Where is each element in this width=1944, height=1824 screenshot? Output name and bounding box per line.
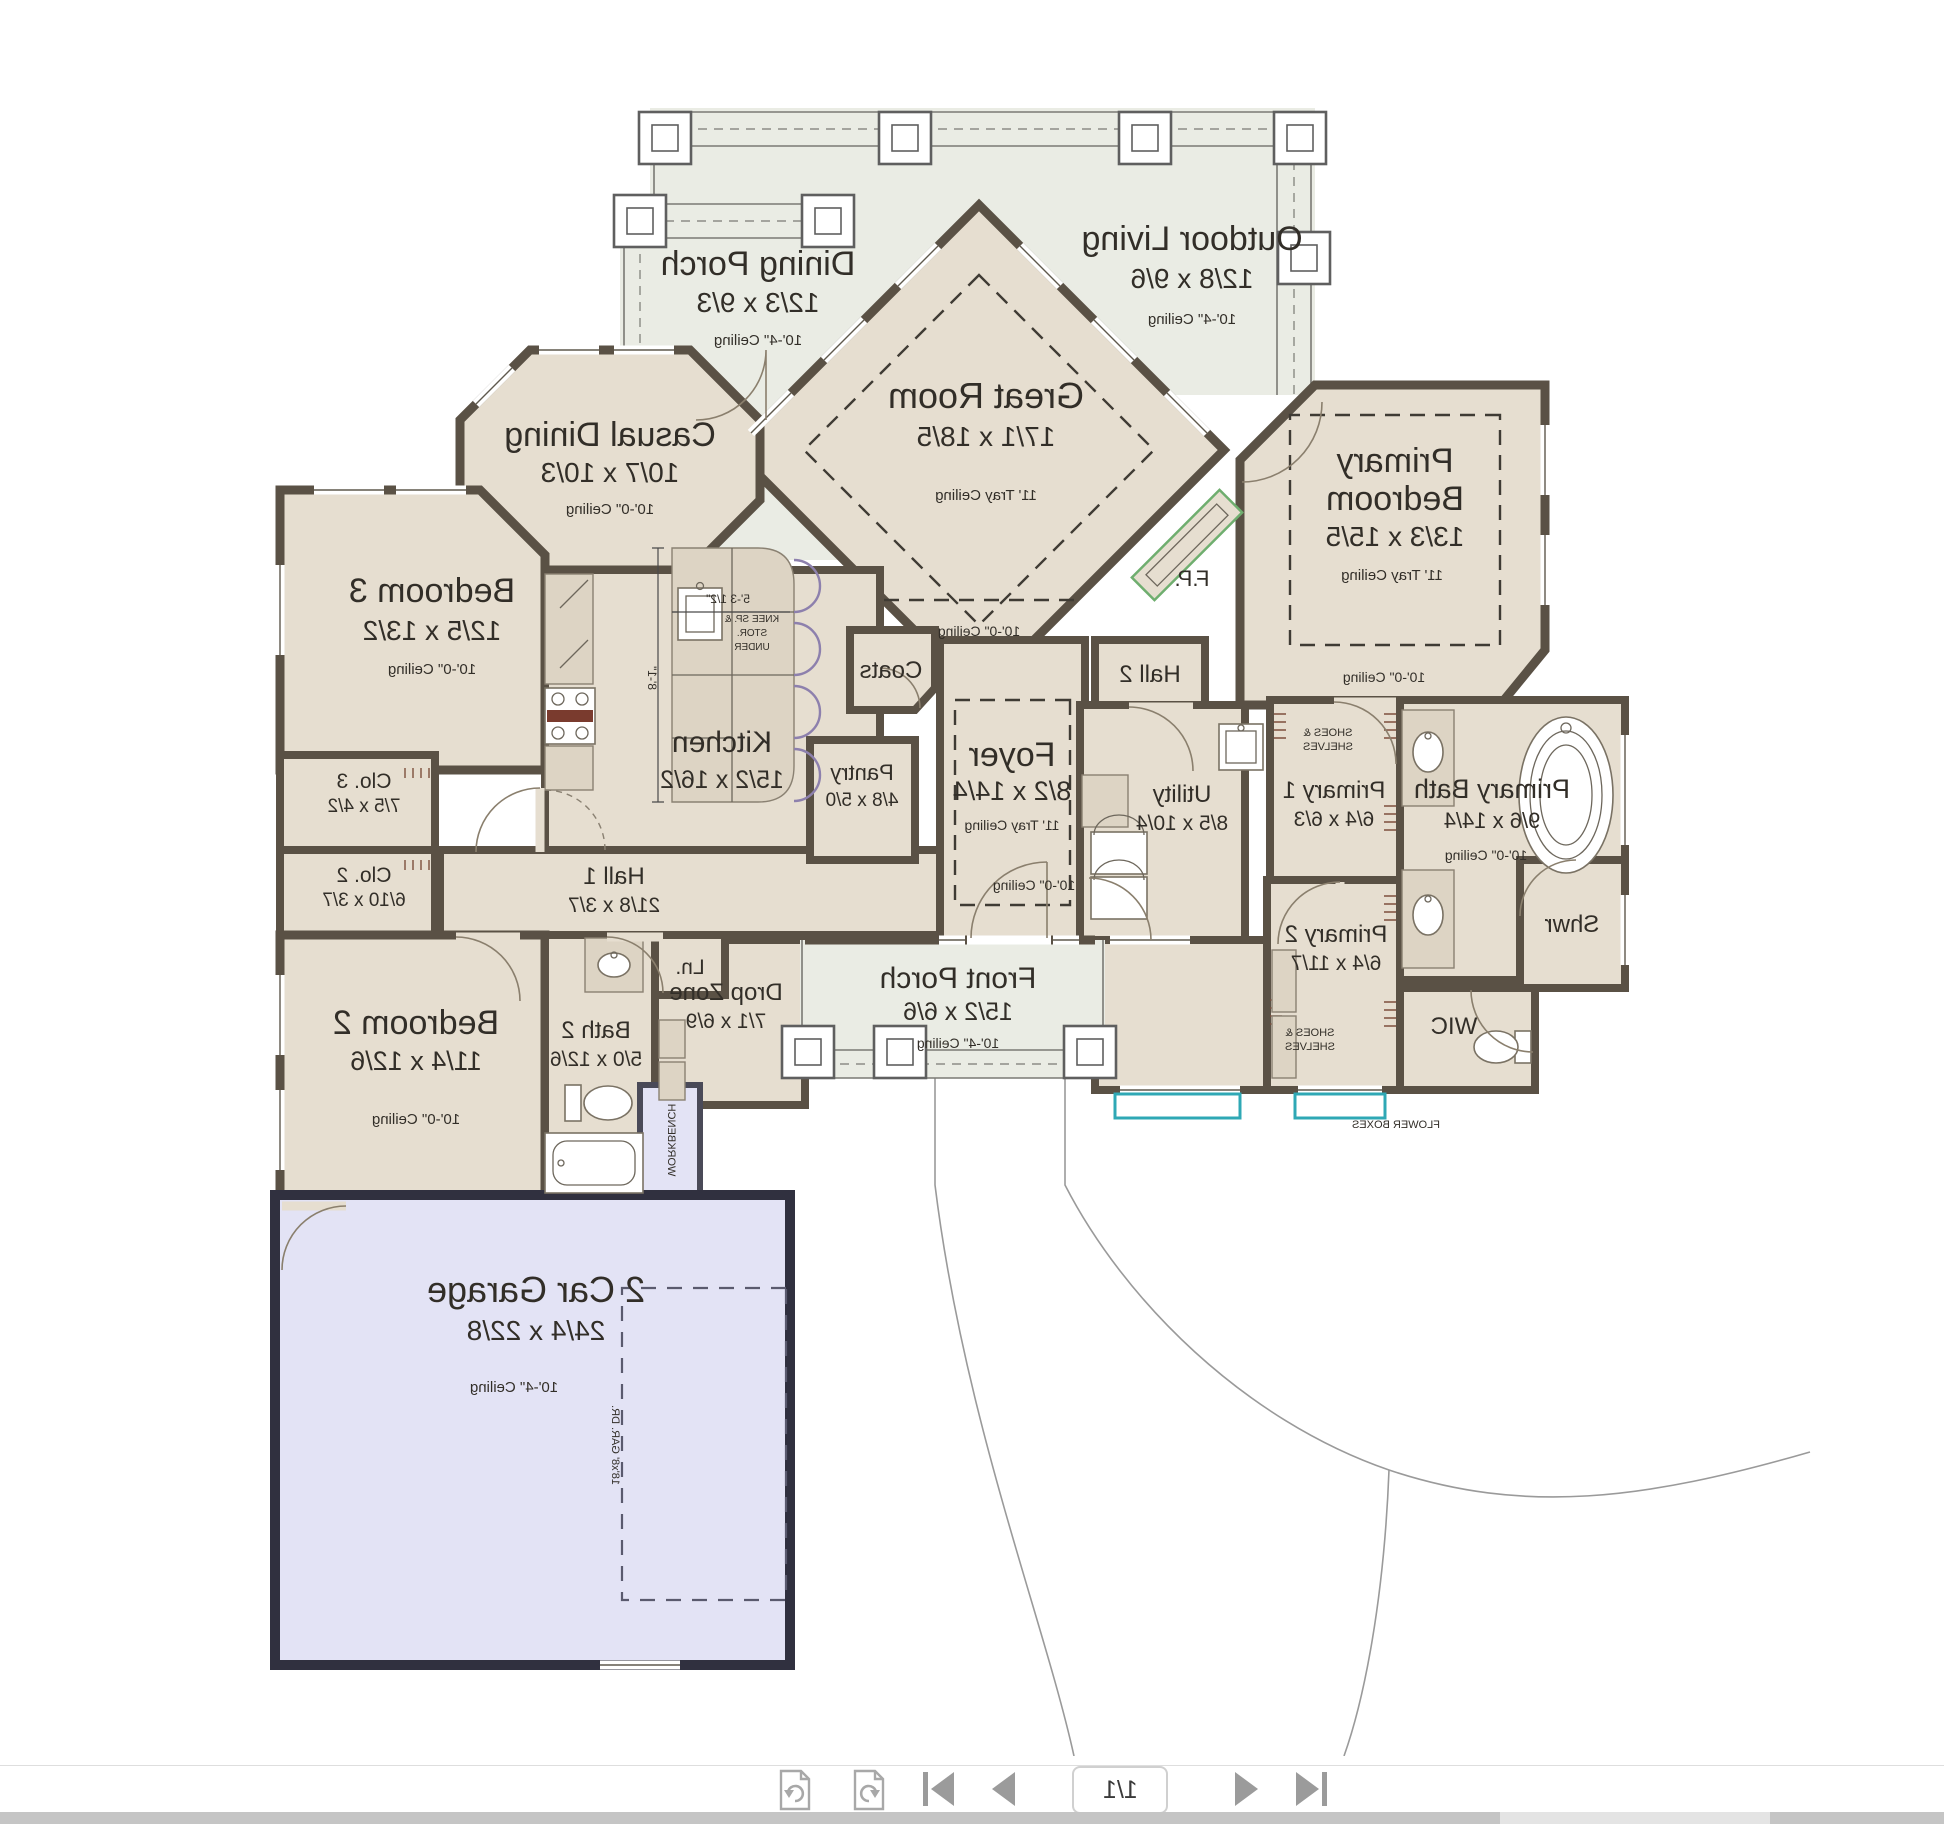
flower-boxes [1115, 1094, 1385, 1118]
svg-text:Pantry: Pantry [830, 760, 894, 785]
svg-text:11' Tray Ceiling: 11' Tray Ceiling [935, 487, 1037, 504]
floor-plan-viewport: 5'-3 1/2" 8'-1" KNEE SP. & STOR. UNDER [0, 0, 1944, 1756]
svg-text:10'-4" Ceiling: 10'-4" Ceiling [1148, 311, 1236, 328]
next-page-button[interactable] [1222, 1768, 1268, 1810]
svg-text:10'-0" Ceiling: 10'-0" Ceiling [938, 623, 1020, 639]
svg-text:Casual Dining: Casual Dining [504, 416, 716, 454]
first-page-icon [918, 1768, 960, 1810]
svg-text:13/3 x 15/5: 13/3 x 15/5 [1326, 521, 1465, 552]
label-shower: Shwr [1545, 911, 1600, 938]
svg-text:STOR.: STOR. [737, 628, 767, 639]
svg-text:6/4 x 6/3: 6/4 x 6/3 [1294, 808, 1375, 831]
page-indicator[interactable]: 1/1 [1072, 1766, 1168, 1814]
svg-text:Drop Zone: Drop Zone [669, 979, 782, 1006]
wic-toilet [1474, 1031, 1531, 1063]
svg-text:Kitchen: Kitchen [672, 726, 772, 759]
label-flower-boxes: FLOWER BOXES [1352, 1119, 1440, 1131]
svg-text:12/3 x 9/3: 12/3 x 9/3 [697, 287, 820, 318]
redo-icon [847, 1768, 891, 1812]
redo-button[interactable] [846, 1768, 892, 1810]
driveway [935, 1078, 1810, 1756]
svg-text:8/2 x 14/4: 8/2 x 14/4 [953, 776, 1072, 806]
svg-text:10'-4" Ceiling: 10'-4" Ceiling [714, 332, 802, 349]
last-page-button[interactable] [1288, 1768, 1334, 1810]
svg-text:10'-4" Ceiling: 10'-4" Ceiling [917, 1035, 999, 1051]
svg-text:Primary Bath: Primary Bath [1414, 774, 1570, 804]
svg-text:Utility: Utility [1153, 781, 1212, 808]
previous-page-icon [984, 1768, 1026, 1810]
label-wic: WIC [1431, 1013, 1478, 1040]
svg-text:Foyer: Foyer [969, 736, 1056, 774]
svg-text:10'-0" Ceiling: 10'-0" Ceiling [1343, 669, 1425, 685]
room-garage [275, 1195, 790, 1665]
svg-text:10'-0" Ceiling: 10'-0" Ceiling [372, 1111, 460, 1128]
svg-text:9/6 x 14/4: 9/6 x 14/4 [1444, 808, 1541, 833]
svg-text:Great Room: Great Room [888, 375, 1084, 416]
svg-text:Bath 2: Bath 2 [561, 1017, 630, 1044]
label-fireplace: F.P. [1174, 566, 1209, 591]
svg-text:17/1 x 18/5: 17/1 x 18/5 [917, 421, 1056, 452]
svg-text:7/1 x 6/9: 7/1 x 6/9 [686, 1010, 767, 1033]
svg-text:5/0 x 12/6: 5/0 x 12/6 [550, 1048, 642, 1071]
svg-text:Dining Porch: Dining Porch [661, 245, 856, 283]
svg-text:12/5 x 13/2: 12/5 x 13/2 [363, 615, 502, 646]
svg-text:Clo. 3: Clo. 3 [337, 770, 392, 793]
page-indicator-text: 1/1 [1103, 1776, 1138, 1805]
label-hall-2: Hall 2 [1119, 661, 1180, 688]
scrollbar-thumb[interactable] [0, 1812, 1500, 1824]
undo-button[interactable] [772, 1768, 818, 1810]
svg-text:10'-0" Ceiling: 10'-0" Ceiling [566, 501, 654, 518]
svg-text:10'-0" Ceiling: 10'-0" Ceiling [993, 877, 1075, 893]
svg-text:2 Car Garage: 2 Car Garage [427, 1269, 645, 1310]
svg-text:11/4 x 12/6: 11/4 x 12/6 [350, 1046, 482, 1076]
svg-text:Hall 1: Hall 1 [583, 863, 644, 890]
svg-text:10'-0" Ceiling: 10'-0" Ceiling [1445, 847, 1527, 863]
floor-plan-canvas: 5'-3 1/2" 8'-1" KNEE SP. & STOR. UNDER [0, 0, 1944, 1756]
svg-text:Primary 1: Primary 1 [1283, 777, 1386, 804]
svg-text:KNEE SP. &: KNEE SP. & [725, 614, 780, 625]
svg-text:Primary 2: Primary 2 [1285, 921, 1388, 948]
svg-text:Bedroom 3: Bedroom 3 [349, 572, 515, 610]
svg-text:8/5 x 10/4: 8/5 x 10/4 [1136, 812, 1229, 835]
svg-text:Primary: Primary [1336, 442, 1453, 480]
svg-text:8'-1": 8'-1" [645, 666, 659, 690]
viewer-toolbar: 1/1 [0, 1766, 1944, 1812]
horizontal-scrollbar[interactable] [0, 1812, 1944, 1824]
svg-text:Clo. 2: Clo. 2 [337, 864, 392, 887]
last-page-icon [1290, 1768, 1332, 1810]
label-garage-door: 18'x8' GAR. DR. [609, 1405, 621, 1485]
svg-text:SHOES &: SHOES & [1303, 727, 1353, 739]
svg-text:6/4 x 11/7: 6/4 x 11/7 [1291, 952, 1382, 975]
svg-text:11' Tray Ceiling: 11' Tray Ceiling [1341, 567, 1443, 584]
label-workbench: WORKBENCH [665, 1104, 677, 1177]
svg-text:21/8 x 3/7: 21/8 x 3/7 [568, 894, 660, 917]
next-page-icon [1224, 1768, 1266, 1810]
svg-text:11' Tray Ceiling: 11' Tray Ceiling [964, 817, 1059, 833]
previous-page-button[interactable] [982, 1768, 1028, 1810]
svg-text:10/7 x 10/3: 10/7 x 10/3 [541, 457, 680, 488]
svg-text:15/2 x 6/6: 15/2 x 6/6 [903, 998, 1013, 1026]
svg-text:7/5 x 4/2: 7/5 x 4/2 [328, 796, 401, 817]
svg-text:4/8 x 5/0: 4/8 x 5/0 [826, 790, 899, 811]
label-coats: Coats [860, 657, 923, 684]
svg-text:6/10 x 3/7: 6/10 x 3/7 [322, 890, 405, 911]
svg-text:Outdoor Living: Outdoor Living [1081, 220, 1302, 258]
svg-text:24/4 x 22/8: 24/4 x 22/8 [467, 1315, 606, 1346]
svg-text:SHOES &: SHOES & [1285, 1027, 1335, 1039]
undo-icon [773, 1768, 817, 1812]
svg-text:5'-3 1/2": 5'-3 1/2" [706, 592, 750, 606]
svg-text:12/8 x 9/6: 12/8 x 9/6 [1131, 263, 1254, 294]
svg-text:Bedroom: Bedroom [1326, 480, 1464, 518]
range [545, 688, 595, 744]
scrollbar-segment [1770, 1812, 1944, 1824]
svg-text:Bedroom 2: Bedroom 2 [333, 1004, 499, 1042]
svg-text:UNDER: UNDER [734, 642, 770, 653]
svg-text:10'-0" Ceiling: 10'-0" Ceiling [388, 661, 476, 678]
label-linen: Ln. [675, 956, 704, 979]
svg-text:Front Porch: Front Porch [880, 962, 1037, 995]
svg-text:15/2 x 16/2: 15/2 x 16/2 [660, 766, 784, 794]
first-page-button[interactable] [916, 1768, 962, 1810]
svg-text:SHELVES: SHELVES [1285, 1041, 1335, 1053]
app-window: 5'-3 1/2" 8'-1" KNEE SP. & STOR. UNDER [0, 0, 1944, 1824]
svg-text:SHELVES: SHELVES [1303, 741, 1353, 753]
suite-corridor [1095, 940, 1267, 1090]
svg-text:10'-4" Ceiling: 10'-4" Ceiling [470, 1379, 558, 1396]
